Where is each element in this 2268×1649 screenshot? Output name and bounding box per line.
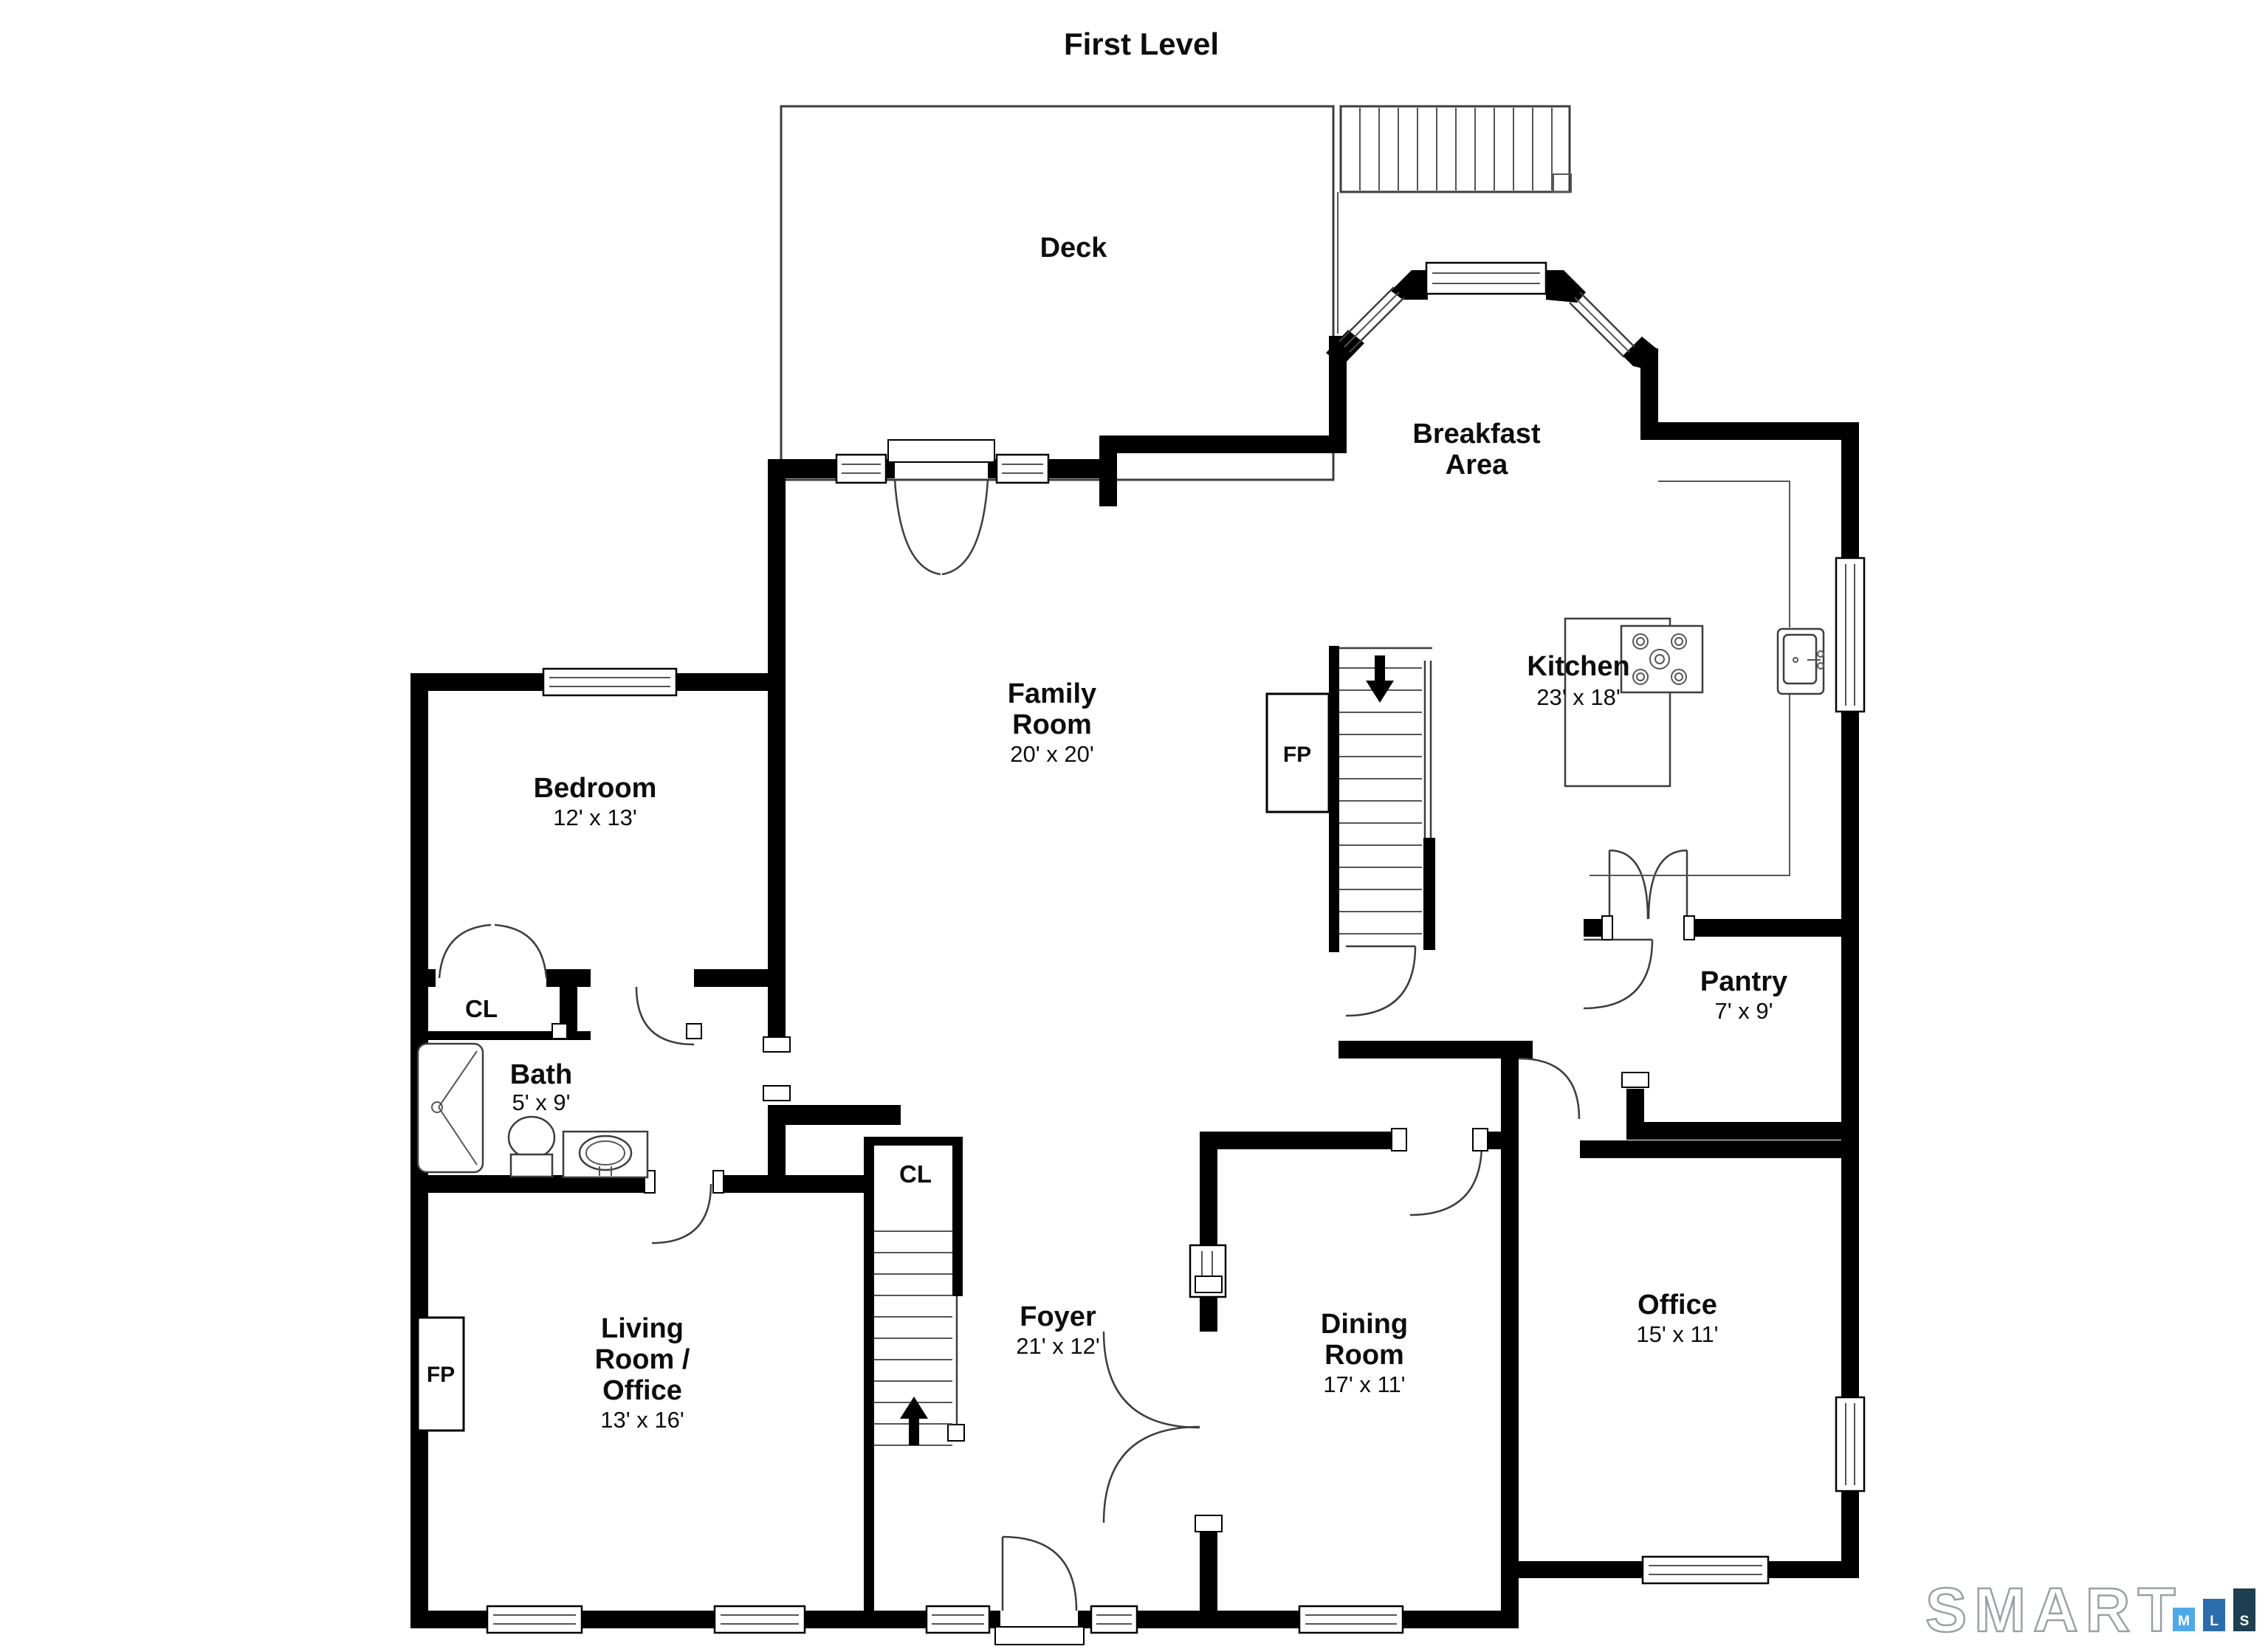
bath-dims: 5' x 9' <box>512 1089 570 1115</box>
window <box>543 669 676 695</box>
window <box>927 1606 989 1633</box>
french-door-deck <box>888 440 994 574</box>
front-door <box>995 1537 1084 1645</box>
window <box>1836 558 1864 712</box>
office-dims: 15' x 11' <box>1636 1321 1718 1347</box>
logo-bar-l-letter: L <box>2210 1614 2219 1629</box>
dining-room-label-2: Room <box>1324 1340 1404 1371</box>
bay-window <box>1339 263 1635 357</box>
stair-door <box>1346 946 1415 1016</box>
window <box>1091 1606 1137 1633</box>
stairs-central <box>1339 648 1435 950</box>
family-room-label: Family <box>1008 678 1096 709</box>
kitchen-double-door <box>1609 850 1687 919</box>
foyer-closet-label: CL <box>899 1160 932 1188</box>
fireplace-living: FP <box>418 1318 464 1431</box>
bedroom-dims: 12' x 13' <box>553 805 637 830</box>
family-room-dims: 20' x 20' <box>1010 741 1094 767</box>
living-room-label-2: Room / <box>595 1344 690 1375</box>
pantry-door <box>1584 940 1652 1008</box>
closet-door <box>495 925 546 978</box>
window <box>487 1606 582 1633</box>
dining-room-label: Dining <box>1321 1309 1408 1340</box>
toilet-icon <box>509 1117 554 1177</box>
family-room-label-2: Room <box>1012 709 1092 740</box>
logo-bar-s-letter: S <box>2240 1614 2250 1629</box>
foyer-label: Foyer <box>1020 1301 1096 1332</box>
window <box>997 455 1048 483</box>
stairs-foyer <box>874 1231 957 1445</box>
breakfast-label-2: Area <box>1446 450 1508 481</box>
dining-room-dims: 17' x 11' <box>1323 1371 1405 1397</box>
fireplace-label: FP <box>1283 743 1311 767</box>
deck-outline <box>781 106 1333 480</box>
kitchen-label: Kitchen <box>1527 651 1629 682</box>
dining-french-door <box>1104 1427 1200 1523</box>
floor-plan-page: FP FP <box>0 0 2268 1649</box>
dining-door <box>1410 1143 1482 1215</box>
kitchen-dims: 23' x 18' <box>1536 684 1621 710</box>
window <box>1299 1606 1403 1633</box>
foyer-dims: 21' x 12' <box>1016 1333 1100 1359</box>
living-room-label-3: Office <box>602 1375 682 1406</box>
bedroom-closet-label: CL <box>465 995 498 1022</box>
dining-french-door <box>1104 1332 1200 1428</box>
deck-label: Deck <box>1040 233 1108 264</box>
stairs-up-arrow <box>900 1397 928 1445</box>
deck-stairs <box>1341 106 1571 192</box>
pantry-label: Pantry <box>1700 966 1787 997</box>
breakfast-label: Breakfast <box>1412 419 1541 450</box>
page-title: First Level <box>1064 27 1219 61</box>
bath-label: Bath <box>510 1059 572 1090</box>
cooktop-icon <box>1621 626 1702 692</box>
bath-door <box>652 1184 711 1243</box>
logo-bar-m-letter: M <box>2178 1614 2190 1629</box>
office-door <box>1519 1058 1579 1119</box>
window <box>836 455 886 483</box>
living-room-label: Living <box>601 1313 684 1344</box>
window <box>1643 1557 1768 1583</box>
office-label: Office <box>1638 1290 1717 1321</box>
closet-door <box>439 925 491 978</box>
bedroom-door <box>636 987 694 1044</box>
kitchen-sink-icon <box>1778 629 1824 694</box>
living-room-dims: 13' x 16' <box>600 1407 684 1433</box>
window <box>1836 1397 1864 1491</box>
brand-wordmark: SMART <box>1925 1575 2183 1645</box>
bedroom-label: Bedroom <box>534 773 657 804</box>
vanity-sink-icon <box>563 1132 647 1177</box>
fireplace-label: FP <box>427 1363 455 1387</box>
shower-icon <box>418 1044 483 1172</box>
stairs-down-arrow <box>1366 655 1394 703</box>
smartmls-logo: SMART M L S <box>1925 1575 2255 1645</box>
window <box>715 1606 805 1633</box>
fireplace-family: FP <box>1267 694 1329 812</box>
floor-plan: FP FP <box>0 0 2268 1649</box>
pantry-dims: 7' x 9' <box>1714 998 1773 1024</box>
